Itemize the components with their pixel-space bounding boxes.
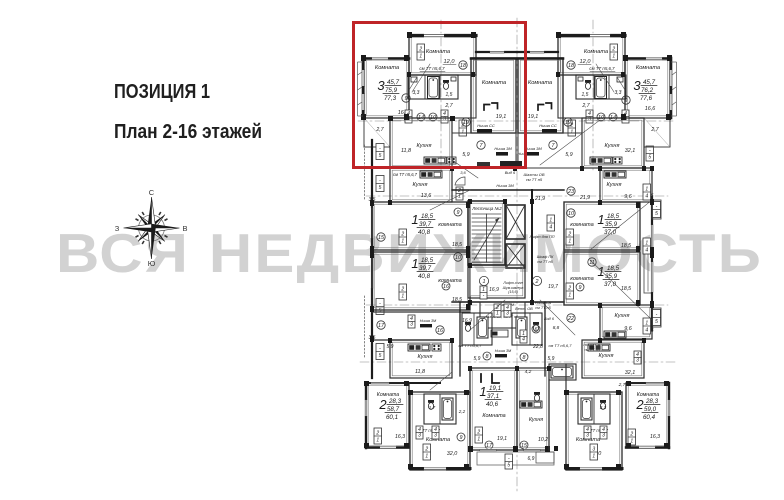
svg-text:15: 15 [521,443,528,449]
svg-text:Кухня: Кухня [605,143,620,149]
svg-text:19,1: 19,1 [497,436,507,442]
svg-text:Ниша 3М: Ниша 3М [494,146,512,151]
svg-text:16,3: 16,3 [650,434,660,440]
svg-text:58,7: 58,7 [387,406,400,413]
svg-text:см ТТ п5: см ТТ п5 [537,260,553,264]
svg-text:Кухня: Кухня [615,313,630,319]
svg-text:4: 4 [522,337,525,343]
svg-text:Шкаф ПК: Шкаф ПК [537,255,554,259]
svg-text:2: 2 [535,279,539,285]
svg-text:комната: комната [438,278,461,284]
svg-text:1: 1 [483,279,486,285]
svg-text:39,7: 39,7 [419,265,432,272]
svg-text:1: 1 [597,264,604,279]
svg-text:18,5: 18,5 [621,243,631,249]
svg-text:16,6: 16,6 [645,106,656,112]
svg-text:Лифт.холл: Лифт.холл [502,281,522,285]
svg-text:12,0: 12,0 [580,59,592,65]
svg-text:Ниша СС: Ниша СС [539,123,557,128]
svg-text:9: 9 [457,210,460,216]
svg-text:2: 2 [629,432,633,438]
svg-text:1: 1 [568,239,571,245]
svg-text:1: 1 [612,54,615,60]
svg-text:37,1: 37,1 [487,393,499,400]
svg-text:1: 1 [549,218,552,224]
svg-text:Комната: Комната [426,49,450,55]
svg-text:ВСЯ НЕДВИЖИМОСТЬ: ВСЯ НЕДВИЖИМОСТЬ [56,222,763,284]
svg-text:1: 1 [401,239,404,245]
svg-text:ПОЗИЦИЯ 1: ПОЗИЦИЯ 1 [114,80,210,103]
svg-text:3,3: 3,3 [413,90,420,96]
svg-text:40,6: 40,6 [486,401,499,408]
svg-text:В: В [182,224,187,233]
svg-text:Ниша СС: Ниша СС [477,123,495,128]
svg-text:19,1: 19,1 [489,385,501,392]
svg-text:3: 3 [586,433,589,439]
svg-text:1: 1 [597,212,604,227]
svg-text:11,8: 11,8 [401,148,411,154]
svg-text:(15,6): (15,6) [508,290,517,294]
svg-text:59,0: 59,0 [644,406,657,413]
svg-text:Комната: Комната [528,80,552,86]
svg-text:см ТТ п5,6,7: см ТТ п5,6,7 [459,343,483,348]
svg-text:З: З [115,224,120,233]
svg-text:19: 19 [463,120,469,126]
svg-text:60,4: 60,4 [643,414,656,421]
svg-text:10: 10 [568,211,574,217]
svg-text:3: 3 [506,311,509,317]
svg-text:60,1: 60,1 [386,414,398,421]
svg-text:32,1: 32,1 [625,148,636,154]
svg-text:32,0: 32,0 [447,451,458,457]
svg-text:5,9: 5,9 [565,152,572,158]
svg-text:5,9: 5,9 [462,152,469,158]
svg-text:комната: комната [570,222,593,228]
svg-text:35,9: 35,9 [605,221,618,228]
svg-text:75,9: 75,9 [385,87,398,94]
svg-text:2: 2 [375,431,379,437]
svg-text:9,6: 9,6 [624,194,632,200]
svg-text:Кухня: Кухня [413,182,428,188]
svg-text:2,7: 2,7 [581,103,590,109]
svg-text:18,5: 18,5 [607,265,620,272]
svg-text:см ТТ п5,6,7: см ТТ п5,6,7 [393,172,418,177]
svg-text:3: 3 [592,447,595,453]
svg-text:8: 8 [523,355,526,361]
svg-text:5,9: 5,9 [474,356,481,362]
svg-text:3: 3 [418,433,421,439]
svg-text:1: 1 [496,311,499,317]
svg-text:см ТТ п5,6,7: см ТТ п5,6,7 [549,343,573,348]
svg-text:3: 3 [636,358,639,364]
svg-text:18,5: 18,5 [421,213,434,220]
svg-text:5,9: 5,9 [548,356,555,362]
svg-text:17: 17 [486,443,493,449]
svg-text:5: 5 [648,155,651,161]
svg-text:77,6: 77,6 [640,95,653,102]
svg-text:3: 3 [434,433,437,439]
svg-text:Вид 6: Вид 6 [544,317,555,321]
svg-text:18,5: 18,5 [421,257,434,264]
svg-text:3,3: 3,3 [615,90,622,96]
svg-text:Вент. ОВ: Вент. ОВ [515,307,533,311]
svg-text:19,1: 19,1 [528,114,539,120]
svg-text:9: 9 [405,96,408,102]
svg-text:4: 4 [645,194,648,200]
svg-text:1: 1 [645,187,648,193]
svg-text:Комната: Комната [375,65,399,71]
svg-text:17: 17 [378,323,385,329]
svg-text:5: 5 [379,153,382,159]
svg-text:Кухня: Кухня [529,417,543,423]
svg-text:2,2: 2,2 [458,409,466,414]
svg-text:13,6: 13,6 [421,193,432,199]
svg-text:32,1: 32,1 [625,370,636,376]
svg-text:Ниша СА, см ТТ п5: Ниша СА, см ТТ п5 [486,315,518,319]
svg-text:Ниша 3М: Ниша 3М [524,146,542,151]
svg-text:1,5: 1,5 [446,92,453,98]
svg-text:4,2: 4,2 [525,369,532,375]
svg-text:Кухня: Кухня [599,353,614,359]
svg-text:8: 8 [486,354,489,360]
svg-text:см ТТ п5,6,7: см ТТ п5,6,7 [589,66,615,71]
svg-text:Лестница №2: Лестница №2 [471,206,502,211]
svg-text:22: 22 [567,316,574,322]
svg-text:76,2: 76,2 [641,87,654,94]
svg-text:23: 23 [567,189,574,195]
svg-text:комната: комната [438,222,461,228]
svg-text:Ниша 3М: Ниша 3М [495,349,512,353]
svg-text:1: 1 [419,54,422,60]
svg-text:9: 9 [579,285,582,291]
svg-text:Комната: Комната [482,413,505,419]
svg-text:План 2-16 этажей: План 2-16 этажей [114,120,262,143]
svg-text:40,8: 40,8 [418,273,431,280]
svg-text:1: 1 [568,293,571,299]
svg-text:Комната: Комната [636,65,660,71]
svg-text:5: 5 [655,211,658,217]
svg-text:2,7: 2,7 [650,127,659,133]
svg-text:1: 1 [477,437,480,443]
svg-text:9: 9 [460,435,463,441]
svg-text:2: 2 [418,47,422,53]
svg-text:16: 16 [443,284,449,290]
svg-text:1: 1 [592,454,595,460]
svg-text:Кухня: Кухня [607,182,622,188]
svg-text:Комната: Комната [584,49,608,55]
svg-text:Ниша 3М: Ниша 3М [496,183,514,188]
svg-text:комната: комната [570,276,593,282]
svg-text:18: 18 [568,63,574,69]
svg-text:37,0: 37,0 [604,281,617,288]
svg-text:1: 1 [645,321,648,327]
svg-text:2: 2 [424,447,428,453]
svg-text:Ю: Ю [148,259,156,268]
svg-text:2,7: 2,7 [444,103,453,109]
svg-text:5: 5 [379,353,382,359]
svg-text:11: 11 [589,260,595,266]
svg-text:19,1: 19,1 [496,114,507,120]
svg-text:5: 5 [379,308,382,314]
svg-text:18,5: 18,5 [607,213,620,220]
svg-text:16: 16 [437,328,443,334]
svg-text:3: 3 [602,433,605,439]
svg-text:16,3: 16,3 [395,434,405,440]
svg-text:С: С [149,188,155,197]
svg-text:19,7: 19,7 [548,284,558,290]
svg-text:28,3: 28,3 [388,398,402,405]
svg-text:2: 2 [611,47,615,53]
svg-text:1: 1 [479,384,486,399]
svg-text:10: 10 [455,255,461,261]
svg-text:см ТТ п5: см ТТ п5 [526,177,543,182]
svg-text:3: 3 [410,322,413,328]
svg-text:1: 1 [645,241,648,247]
svg-text:3,6: 3,6 [460,170,466,175]
svg-text:16,9: 16,9 [489,287,499,293]
svg-text:9: 9 [625,98,628,104]
svg-text:18,5: 18,5 [452,242,462,248]
svg-text:77,3: 77,3 [384,95,397,102]
svg-text:2: 2 [567,286,571,292]
svg-text:10,2: 10,2 [538,437,548,443]
svg-text:1: 1 [401,294,404,300]
svg-text:5: 5 [507,463,510,469]
svg-text:1: 1 [376,438,379,444]
svg-text:45,7: 45,7 [643,79,656,86]
svg-text:Комната: Комната [482,80,506,86]
svg-text:1: 1 [411,256,418,271]
svg-text:4: 4 [549,225,552,231]
svg-text:39,7: 39,7 [419,221,432,228]
svg-text:2: 2 [476,430,480,436]
svg-text:2,7: 2,7 [618,382,626,388]
svg-text:4: 4 [645,248,648,254]
svg-text:45,7: 45,7 [387,79,400,86]
svg-text:28,3: 28,3 [645,398,659,405]
svg-text:Лифт для ПП: Лифт для ПП [529,235,555,239]
svg-text:2,7: 2,7 [375,127,384,133]
svg-text:40,8: 40,8 [418,229,431,236]
svg-text:6,9: 6,9 [528,456,535,462]
svg-text:8,8: 8,8 [553,325,560,330]
svg-text:5,9: 5,9 [387,344,394,350]
svg-text:1: 1 [411,212,418,227]
svg-text:Кухня: Кухня [418,354,433,360]
svg-text:15: 15 [378,235,385,241]
svg-text:2: 2 [567,232,571,238]
svg-text:см ТТ п5,6,7: см ТТ п5,6,7 [419,66,445,71]
svg-text:2: 2 [400,232,404,238]
svg-text:5: 5 [655,319,658,325]
svg-text:1: 1 [425,454,428,460]
svg-text:5: 5 [379,185,382,191]
svg-text:19: 19 [565,120,571,126]
svg-text:Ниша 3М: Ниша 3М [420,319,437,323]
svg-text:12,0: 12,0 [444,59,456,65]
svg-text:21,9: 21,9 [534,196,545,202]
svg-text:2: 2 [400,287,404,293]
svg-text:18: 18 [460,63,466,69]
svg-text:11,8: 11,8 [415,369,425,375]
svg-text:1,5: 1,5 [582,92,589,98]
svg-text:Кухня: Кухня [417,143,432,149]
svg-text:6: 6 [535,327,538,333]
svg-text:4: 4 [645,328,648,334]
svg-text:21,9: 21,9 [579,195,590,201]
